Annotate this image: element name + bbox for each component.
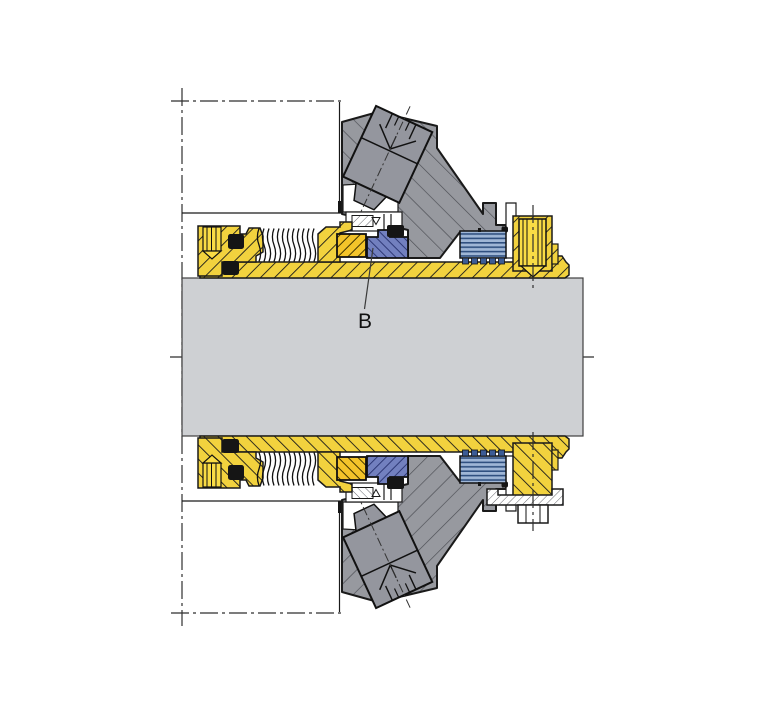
o-ring-upper xyxy=(228,234,244,249)
label-b: B xyxy=(358,310,372,333)
bellows-teeth xyxy=(463,258,505,264)
gland-block-tab-top xyxy=(552,244,558,264)
bellows-tick xyxy=(478,228,481,232)
drive-pin xyxy=(352,216,373,227)
gland-block-tab-bottom xyxy=(552,450,558,470)
lower-seal-assembly xyxy=(182,436,569,621)
shaft xyxy=(182,278,583,436)
upper-seal-assembly xyxy=(182,93,569,278)
seal-cross-section-diagram: B xyxy=(0,0,768,716)
face-cap xyxy=(387,225,404,237)
o-ring-lower xyxy=(222,261,239,275)
bellows xyxy=(460,231,506,258)
spring xyxy=(257,229,315,262)
rotating-seal-face xyxy=(337,234,366,257)
